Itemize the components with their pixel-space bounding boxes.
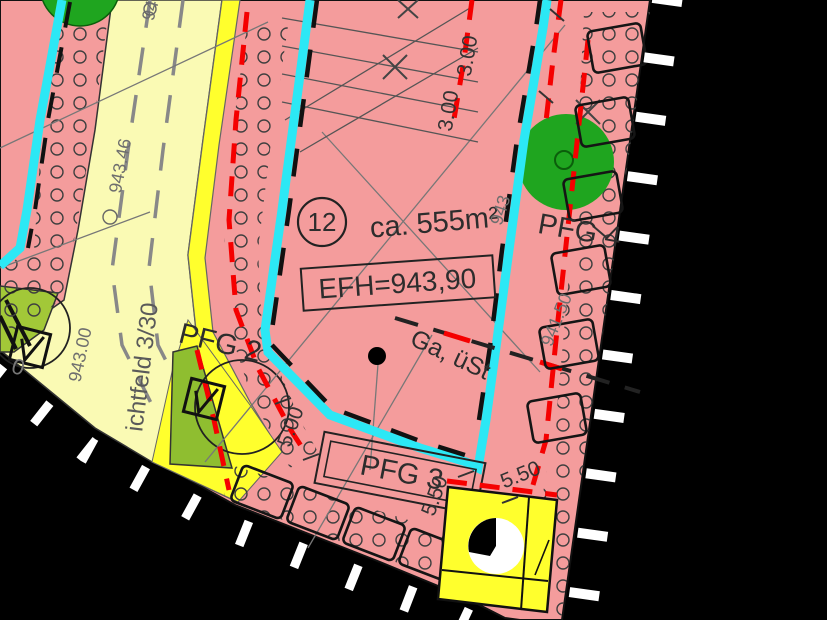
measure-point-icon <box>368 347 386 365</box>
zoning-plan-map: 12 ca. 555m² EFH=943,90 Ga, üSt PFG 2 PF… <box>0 0 827 620</box>
parcel-number-label: 12 <box>308 207 337 237</box>
plan-canvas: 12 ca. 555m² EFH=943,90 Ga, üSt PFG 2 PF… <box>0 0 827 620</box>
utility-station-area <box>438 487 557 612</box>
